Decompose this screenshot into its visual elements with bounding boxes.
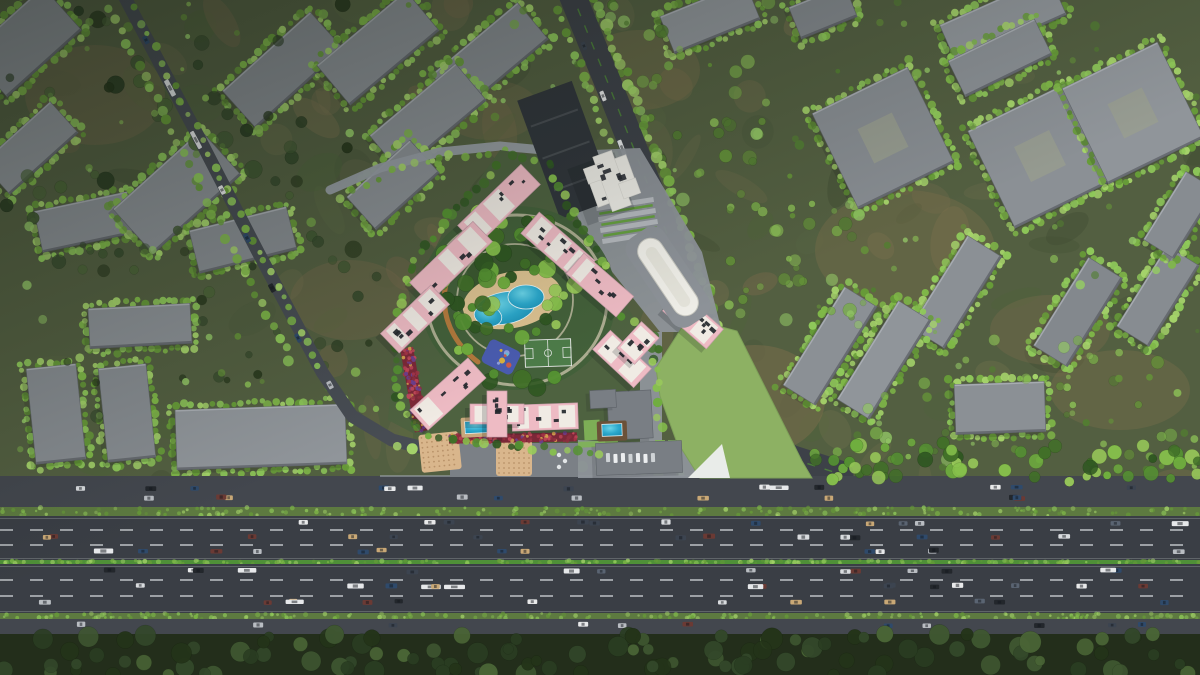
site-plan-scene xyxy=(0,0,1200,675)
atmosphere-overlay xyxy=(0,0,1200,675)
aerial-masterplan-render xyxy=(0,0,1200,675)
